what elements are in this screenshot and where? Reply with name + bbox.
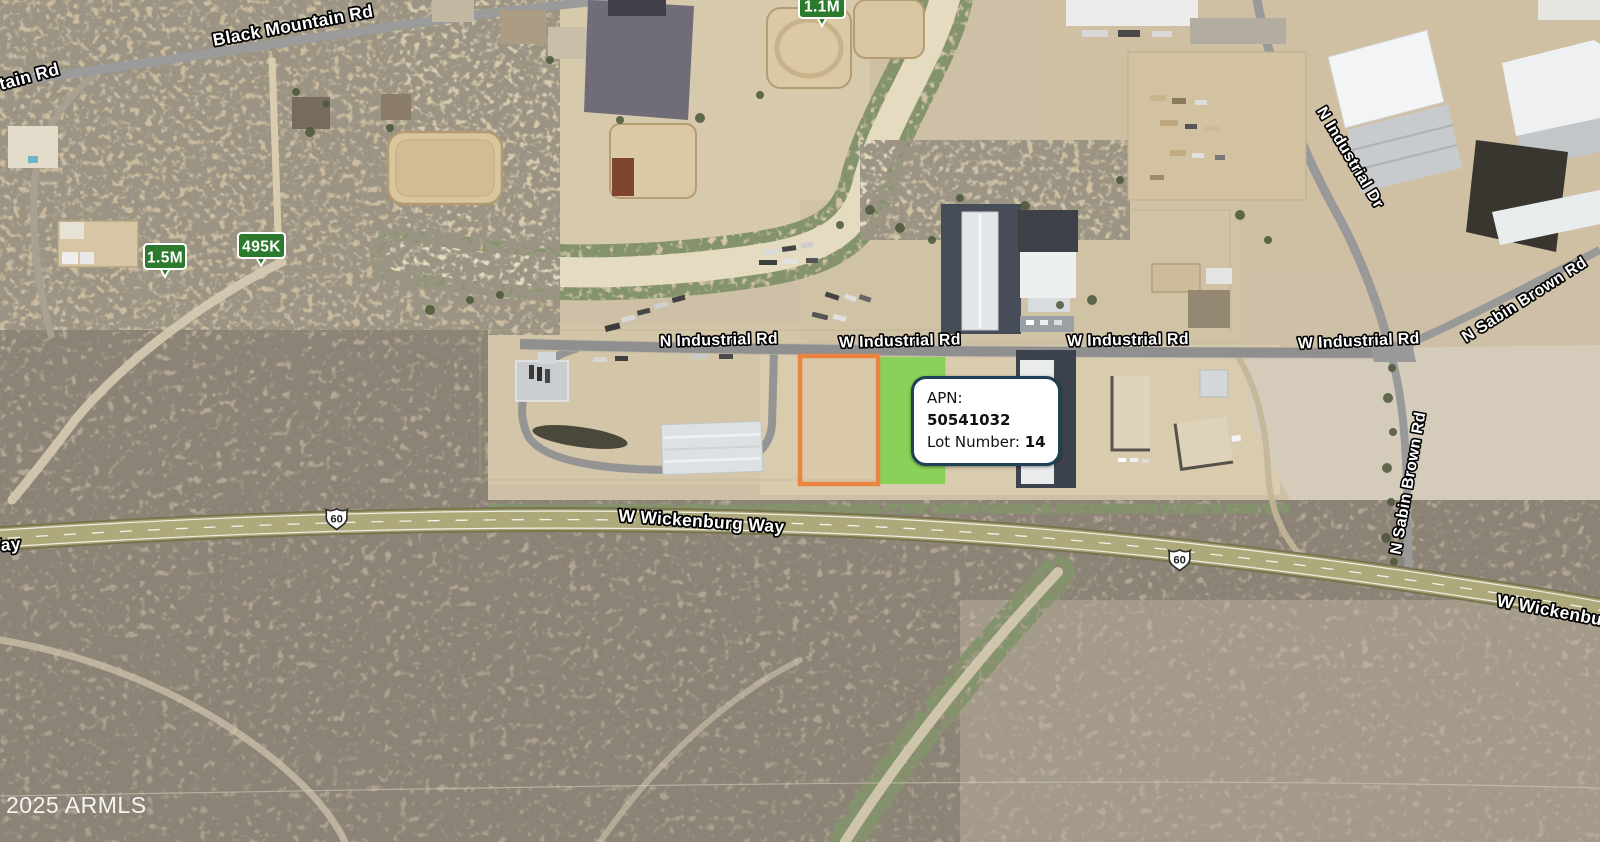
lot-value: 14 — [1025, 433, 1046, 451]
road-label-w-industrial-rd-1: W Industrial Rd — [839, 331, 961, 351]
road-label-way-partial: Way — [0, 534, 21, 556]
route-shield-number: 60 — [1173, 554, 1185, 566]
parcel-info-callout: APN: 50541032 Lot Number: 14 — [911, 376, 1061, 466]
satellite-imagery: 60 60 1.5M 495K 1.1M tain Rd Black Mount… — [0, 0, 1600, 842]
lot-line: Lot Number: 14 — [927, 432, 1048, 454]
road-label-n-industrial-rd: N Industrial Rd — [660, 330, 779, 350]
copyright-watermark: 2025 ARMLS — [6, 792, 147, 819]
road-label-w-industrial-rd-2: W Industrial Rd — [1067, 331, 1189, 350]
lot-label: Lot Number: — [927, 433, 1020, 451]
apn-label: APN: — [927, 389, 963, 407]
satellite-map[interactable]: 60 60 1.5M 495K 1.1M tain Rd Black Mount… — [0, 0, 1600, 842]
price-marker-label: 1.1M — [804, 0, 840, 16]
outlined-parcel-orange[interactable] — [800, 356, 878, 484]
apn-line: APN: 50541032 — [927, 388, 1048, 432]
price-marker-label: 1.5M — [147, 250, 183, 267]
apn-value: 50541032 — [927, 411, 1011, 429]
route-shield-number: 60 — [330, 513, 342, 525]
price-marker-label: 495K — [242, 239, 281, 256]
